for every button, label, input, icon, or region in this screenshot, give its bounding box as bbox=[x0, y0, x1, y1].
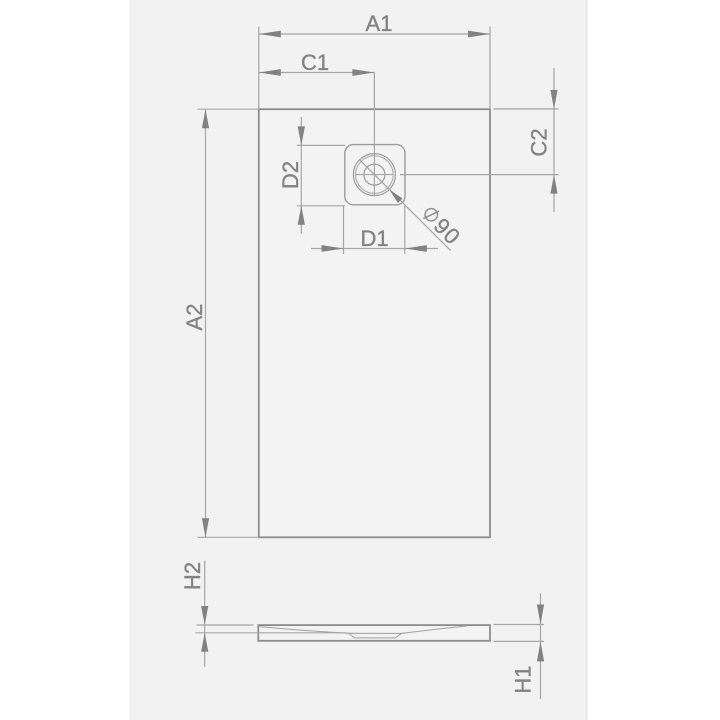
svg-text:C2: C2 bbox=[527, 128, 552, 156]
svg-text:D1: D1 bbox=[360, 226, 388, 251]
svg-text:D2: D2 bbox=[278, 161, 303, 189]
svg-text:H2: H2 bbox=[180, 562, 205, 590]
svg-text:H1: H1 bbox=[510, 666, 535, 694]
svg-text:A2: A2 bbox=[182, 304, 207, 331]
svg-text:A1: A1 bbox=[366, 11, 393, 36]
svg-text:C1: C1 bbox=[301, 50, 329, 75]
